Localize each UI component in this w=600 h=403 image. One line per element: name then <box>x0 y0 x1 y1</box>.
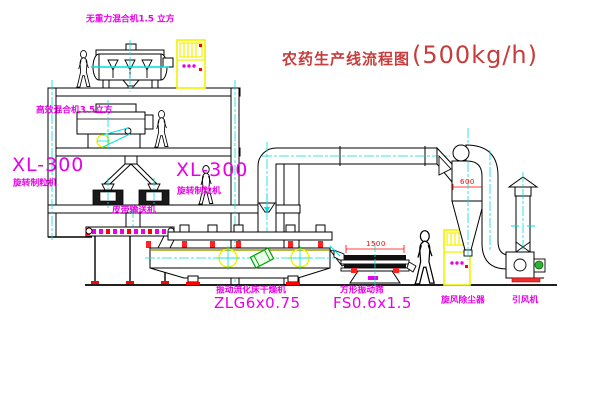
diagram-title: 农药生产线流程图 (500kg/h) <box>282 41 538 69</box>
label-granulator-right-model: XL-300 <box>176 161 248 180</box>
person-figure <box>155 110 168 147</box>
person-figure <box>415 231 434 284</box>
vibrating-screen <box>330 242 416 286</box>
person-figure <box>77 50 90 87</box>
title-capacity: (500kg/h) <box>412 41 538 69</box>
granulator-left <box>93 178 123 208</box>
label-gravity-mixer: 无重力混合机1.5 立方 <box>86 15 174 24</box>
fluid-bed-dryer <box>145 225 350 285</box>
label-high-eff-mixer: 高效混合机3.5立方 <box>36 106 113 115</box>
label-cyclone: 旋风除尘器 <box>441 296 485 305</box>
granulator-right <box>139 178 169 208</box>
label-belt-conveyor: 皮带输送机 <box>112 206 156 215</box>
gravity-mixer <box>91 40 173 92</box>
dimension-cyclone-diameter: 600 <box>460 179 475 186</box>
label-granulator-left-model: XL-300 <box>12 156 84 175</box>
label-dryer-model: ZLG6x0.75 <box>214 296 301 311</box>
dimension-screen-length: 1500 <box>366 241 386 248</box>
label-granulator-left-name: 旋转制粒机 <box>13 179 57 188</box>
control-cabinet-1 <box>177 40 205 88</box>
label-screen-model: FS0.6x1.5 <box>333 296 412 311</box>
label-fan: 引风机 <box>512 296 538 305</box>
label-granulator-right-name: 旋转制粒机 <box>177 187 221 196</box>
title-chinese: 农药生产线流程图 <box>282 42 410 69</box>
y-chute <box>104 156 157 184</box>
process-flow-diagram: 农药生产线流程图 (500kg/h) 无重力混合机1.5 立方 高效混合机3.5… <box>0 0 600 403</box>
induced-draft-fan <box>506 172 545 282</box>
